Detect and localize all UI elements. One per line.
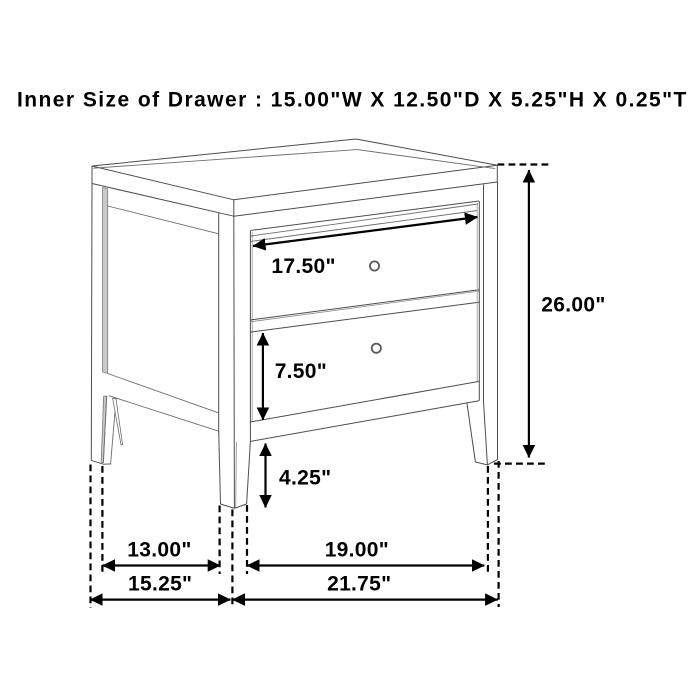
- svg-text:21.75": 21.75": [327, 573, 391, 596]
- svg-text:17.50": 17.50": [271, 255, 335, 278]
- svg-text:26.00": 26.00": [541, 293, 605, 316]
- svg-text:13.00": 13.00": [127, 539, 191, 562]
- svg-text:15.25": 15.25": [128, 573, 192, 596]
- svg-text:4.25": 4.25": [279, 467, 331, 490]
- svg-text:19.00": 19.00": [325, 539, 389, 562]
- svg-text:7.50": 7.50": [275, 360, 327, 383]
- svg-text:Inner Size of Drawer : 15.00"W: Inner Size of Drawer : 15.00"W X 12.50"D…: [17, 89, 688, 112]
